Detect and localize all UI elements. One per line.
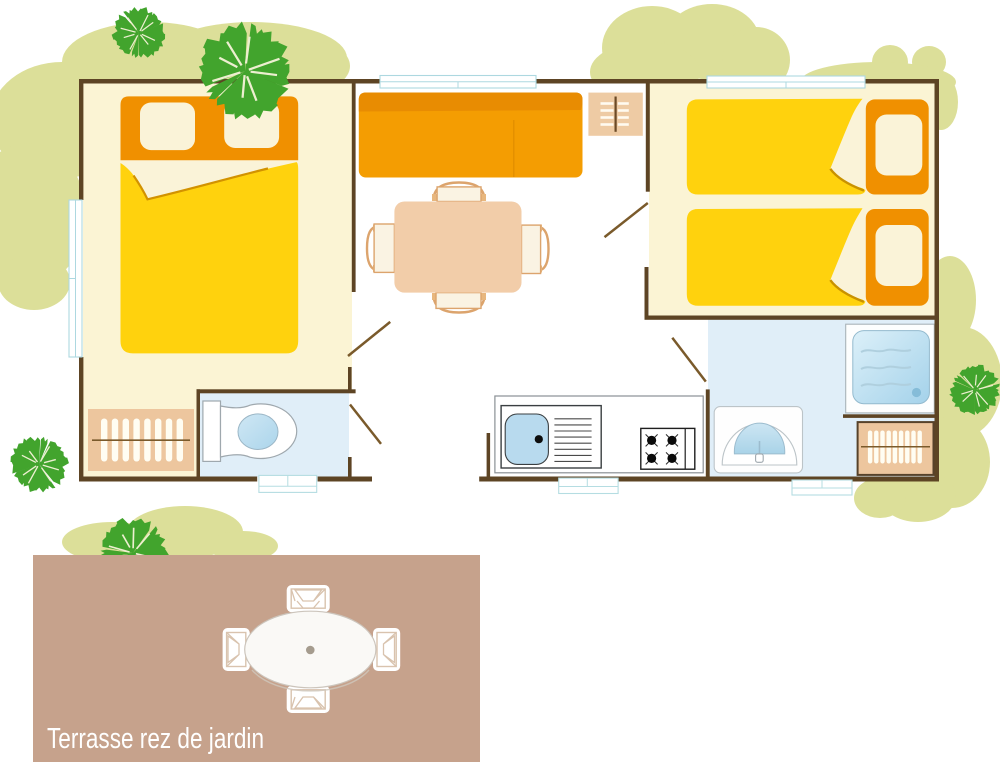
svg-text:Terrasse rez de jardin: Terrasse rez de jardin bbox=[47, 723, 264, 755]
